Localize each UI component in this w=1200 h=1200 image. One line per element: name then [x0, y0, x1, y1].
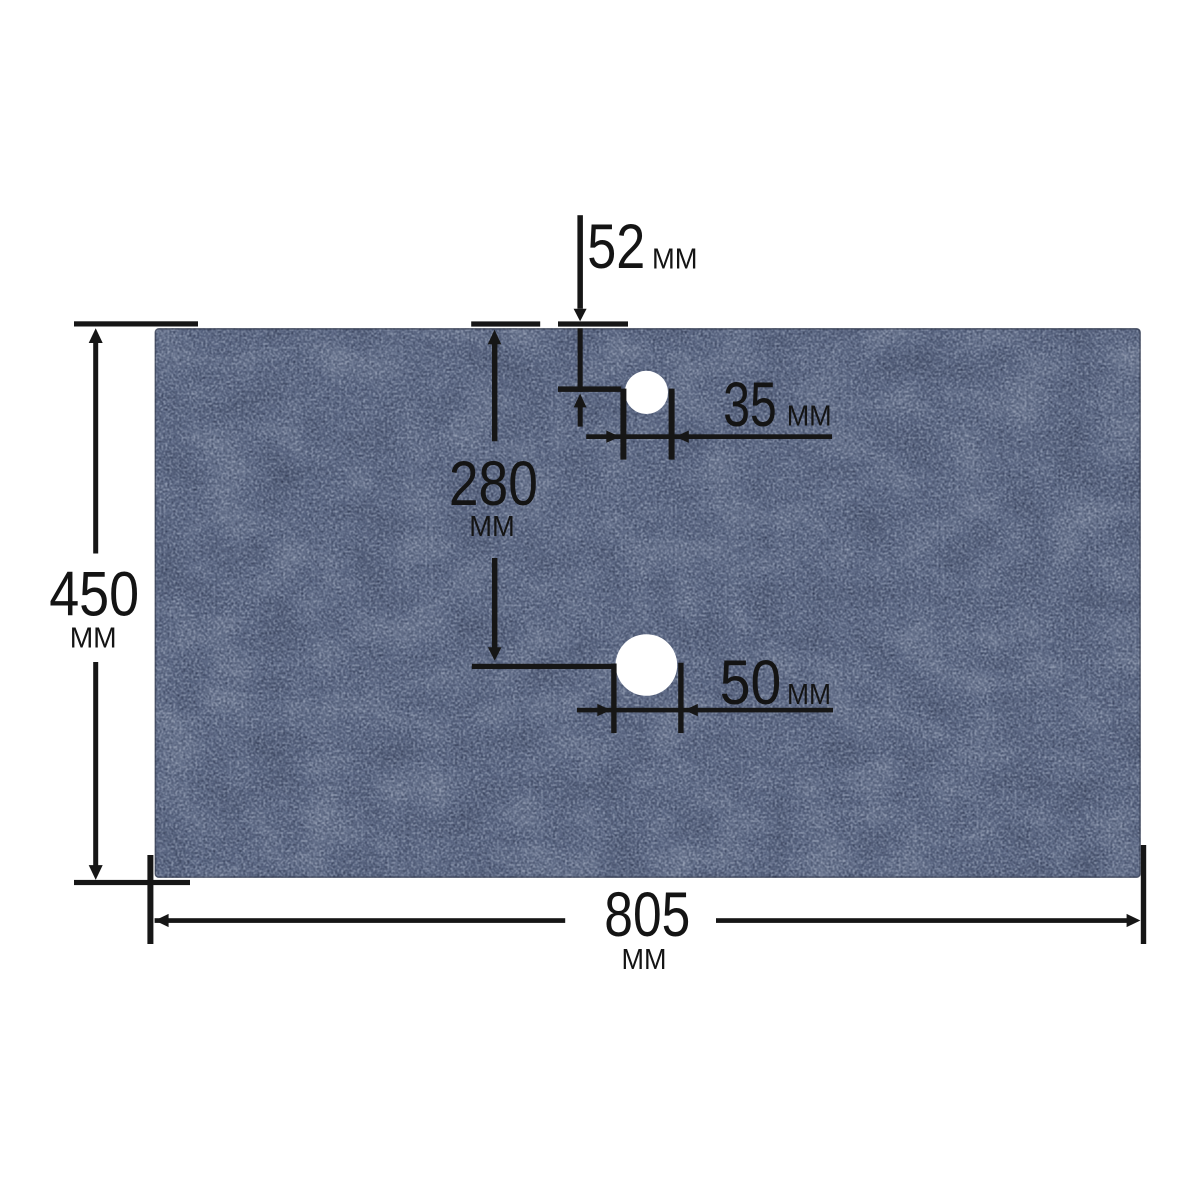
- svg-text:280: 280: [449, 449, 538, 519]
- svg-text:MM: MM: [787, 679, 831, 711]
- svg-text:MM: MM: [469, 511, 515, 543]
- svg-text:450: 450: [49, 559, 139, 629]
- svg-text:35: 35: [723, 370, 777, 440]
- svg-text:MM: MM: [787, 400, 832, 432]
- svg-text:50: 50: [720, 648, 782, 718]
- svg-text:805: 805: [604, 880, 690, 950]
- svg-text:52: 52: [587, 212, 645, 282]
- svg-text:MM: MM: [70, 622, 117, 654]
- svg-text:MM: MM: [622, 944, 667, 976]
- svg-text:MM: MM: [652, 244, 698, 276]
